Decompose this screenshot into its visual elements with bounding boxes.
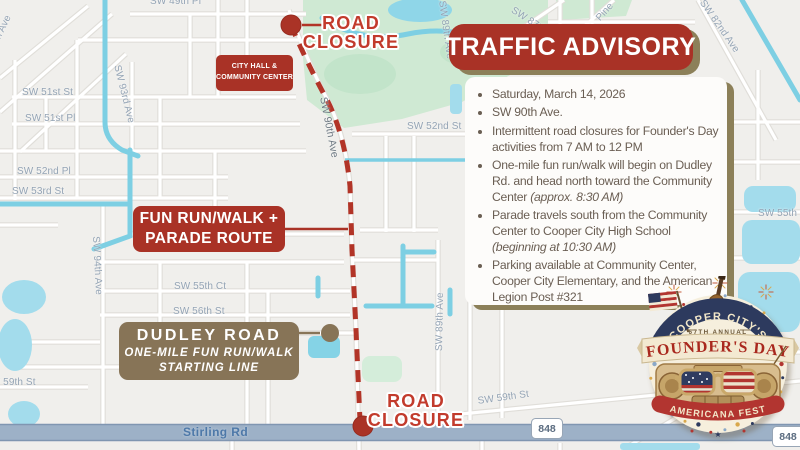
advisory-bullet: One-mile fun run/walk will begin on Dudl… [492, 158, 723, 206]
street-label: SW 59th St [0, 377, 36, 388]
street-label: SW 56th St [173, 306, 225, 317]
road-closure-line2: CLOSURE [271, 33, 431, 52]
stirling-rd-label: Stirling Rd [183, 425, 248, 439]
dudley-title: DUDLEY ROAD [137, 327, 282, 345]
street-label: SW 51st Pl [25, 113, 75, 124]
road-closure-line1: ROAD [336, 392, 496, 411]
traffic-advisory-header: TRAFFIC ADVISORY [449, 24, 693, 70]
advisory-bullet: SW 90th Ave. [492, 105, 723, 121]
city-hall-label: CITY HALL & COMMUNITY CENTER [216, 55, 293, 91]
dudley-line3: STARTING LINE [159, 361, 259, 376]
dudley-road-label: DUDLEY ROAD ONE-MILE FUN RUN/WALK STARTI… [119, 322, 299, 380]
street-label: SW 49th Pl [150, 0, 201, 7]
road-closure-label-top: ROAD CLOSURE [271, 14, 431, 51]
street-label: SW 55th Ct [174, 281, 226, 292]
page-title: TRAFFIC ADVISORY [446, 33, 697, 62]
city-hall-line2: COMMUNITY CENTER [216, 73, 293, 84]
advisory-list: Saturday, March 14, 2026SW 90th Ave.Inte… [465, 77, 727, 305]
street-label: SW 52nd Pl [17, 166, 71, 177]
street-label: SW 55th St [758, 208, 800, 219]
fun-run-line1: FUN RUN/WALK + [140, 209, 279, 229]
starting-line-dot [321, 324, 339, 342]
road-closure-label-bottom: ROAD CLOSURE [336, 392, 496, 429]
street-label: SW 51st St [22, 87, 73, 98]
star-icon: ★ [714, 430, 721, 439]
street-label: SW 89th Ave [434, 292, 446, 351]
advisory-panel: Saturday, March 14, 2026SW 90th Ave.Inte… [465, 77, 727, 305]
fun-run-line2: PARADE ROUTE [145, 229, 273, 249]
city-hall-line1: CITY HALL & [232, 62, 278, 73]
dudley-line2: ONE-MILE FUN RUN/WALK [124, 346, 293, 361]
traffic-advisory-flyer: SW 49th PlSW 51st StSW 51st PlSW 52nd Pl… [0, 0, 800, 450]
fun-run-parade-label: FUN RUN/WALK + PARADE ROUTE [133, 206, 285, 252]
road-closure-line1: ROAD [271, 14, 431, 33]
street-label: SW 53rd St [12, 186, 64, 197]
street-label: SW 52nd St [407, 121, 461, 132]
advisory-bullet: Parade travels south from the Community … [492, 208, 723, 256]
road-closure-line2: CLOSURE [336, 411, 496, 430]
founders-day-logo: COOPER CITY'S ★ ★ 67TH ANNUAL FOUNDER'S … [636, 276, 800, 448]
advisory-bullet: Intermittent road closures for Founder's… [492, 124, 723, 156]
highway-848-badge: 848 [531, 418, 563, 439]
advisory-bullet: Saturday, March 14, 2026 [492, 87, 723, 103]
